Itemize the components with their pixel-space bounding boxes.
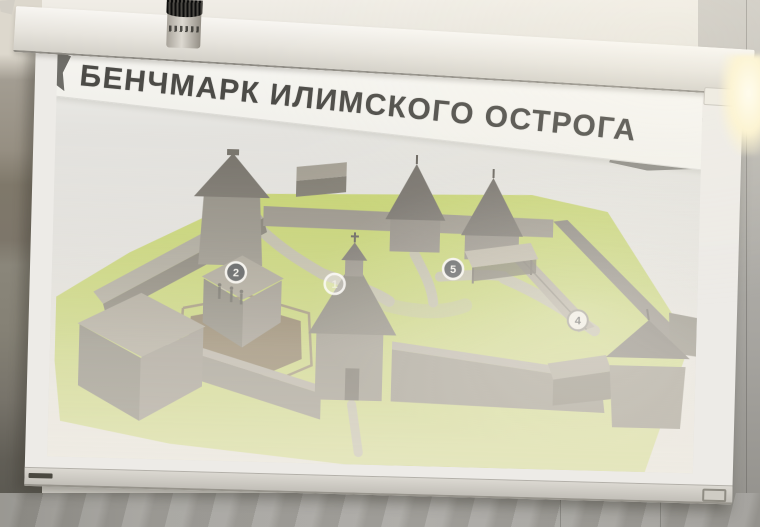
map-marker: 4 bbox=[568, 310, 589, 331]
tower-a-body bbox=[390, 217, 441, 252]
church-door bbox=[345, 368, 360, 400]
screen-brand-label bbox=[28, 473, 52, 479]
fortress-illustration: 2 1 5 4 bbox=[47, 145, 701, 474]
wall-light-reflection bbox=[720, 55, 760, 155]
right-tower-body bbox=[608, 365, 686, 429]
photo-presentation-room: БЕНЧМАРК ИЛИМСКОГО ОСТРОГА bbox=[0, 0, 760, 527]
gate-tower-roof bbox=[194, 152, 271, 198]
gate-tower-cupola bbox=[227, 145, 239, 155]
marker-number: 2 bbox=[233, 267, 239, 279]
marker-number: 5 bbox=[450, 264, 456, 276]
screen-pull-tab bbox=[702, 489, 726, 503]
map-marker: 2 bbox=[226, 262, 247, 283]
gate-tower-body bbox=[198, 192, 264, 266]
map-marker: 5 bbox=[443, 259, 464, 280]
ceiling-spotlight bbox=[166, 0, 202, 49]
spotlight-ribbed-cap bbox=[166, 0, 203, 18]
marker-number: 1 bbox=[331, 279, 337, 291]
map-marker: 1 bbox=[324, 274, 345, 295]
presentation-slide: БЕНЧМАРК ИЛИМСКОГО ОСТРОГА bbox=[47, 53, 703, 474]
projection-screen: БЕНЧМАРК ИЛИМСКОГО ОСТРОГА bbox=[24, 38, 743, 504]
tower-a-roof bbox=[385, 163, 446, 221]
spotlight-vent-holes bbox=[169, 25, 199, 32]
